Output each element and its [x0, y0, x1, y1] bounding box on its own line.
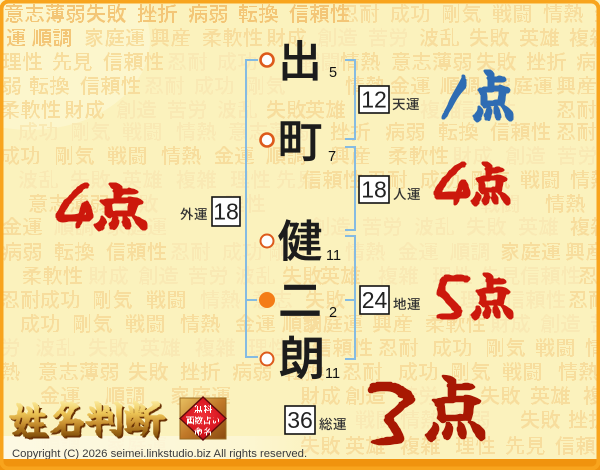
svg-text:36: 36 — [287, 407, 313, 433]
svg-text:24: 24 — [362, 287, 388, 313]
svg-text:18: 18 — [213, 199, 239, 225]
svg-text:7: 7 — [328, 149, 336, 165]
svg-text:11: 11 — [325, 366, 340, 382]
svg-text:2: 2 — [329, 305, 337, 321]
svg-text:12: 12 — [361, 87, 387, 113]
svg-text:11: 11 — [326, 248, 341, 264]
svg-text:5: 5 — [329, 65, 337, 81]
svg-text:Copyright (C) 2026 seimei.link: Copyright (C) 2026 seimei.linkstudio.biz… — [12, 448, 307, 460]
svg-text:18: 18 — [361, 177, 387, 203]
